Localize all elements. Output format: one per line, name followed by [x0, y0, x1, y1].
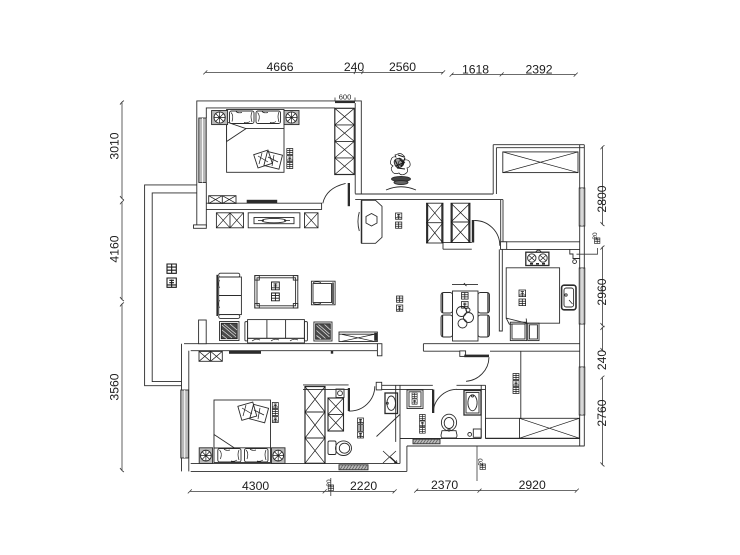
svg-text:20: 20	[326, 479, 333, 487]
svg-text:20: 20	[592, 232, 599, 240]
svg-text:4300: 4300	[242, 479, 269, 493]
svg-text:4666: 4666	[266, 60, 293, 74]
svg-text:240: 240	[595, 350, 609, 371]
svg-text:4160: 4160	[108, 235, 122, 262]
svg-text:2392: 2392	[525, 62, 552, 76]
svg-text:600: 600	[339, 93, 352, 102]
svg-text:2760: 2760	[595, 399, 609, 426]
svg-text:2800: 2800	[595, 185, 609, 212]
svg-text:3010: 3010	[108, 132, 122, 159]
svg-text:2370: 2370	[431, 478, 458, 492]
svg-text:240: 240	[344, 60, 365, 74]
svg-text:1618: 1618	[462, 62, 489, 76]
svg-text:3560: 3560	[108, 373, 122, 400]
svg-text:2560: 2560	[389, 60, 416, 74]
svg-text:2220: 2220	[350, 479, 377, 493]
svg-text:20: 20	[478, 458, 485, 466]
svg-text:2960: 2960	[595, 278, 609, 305]
svg-text:2920: 2920	[519, 478, 546, 492]
